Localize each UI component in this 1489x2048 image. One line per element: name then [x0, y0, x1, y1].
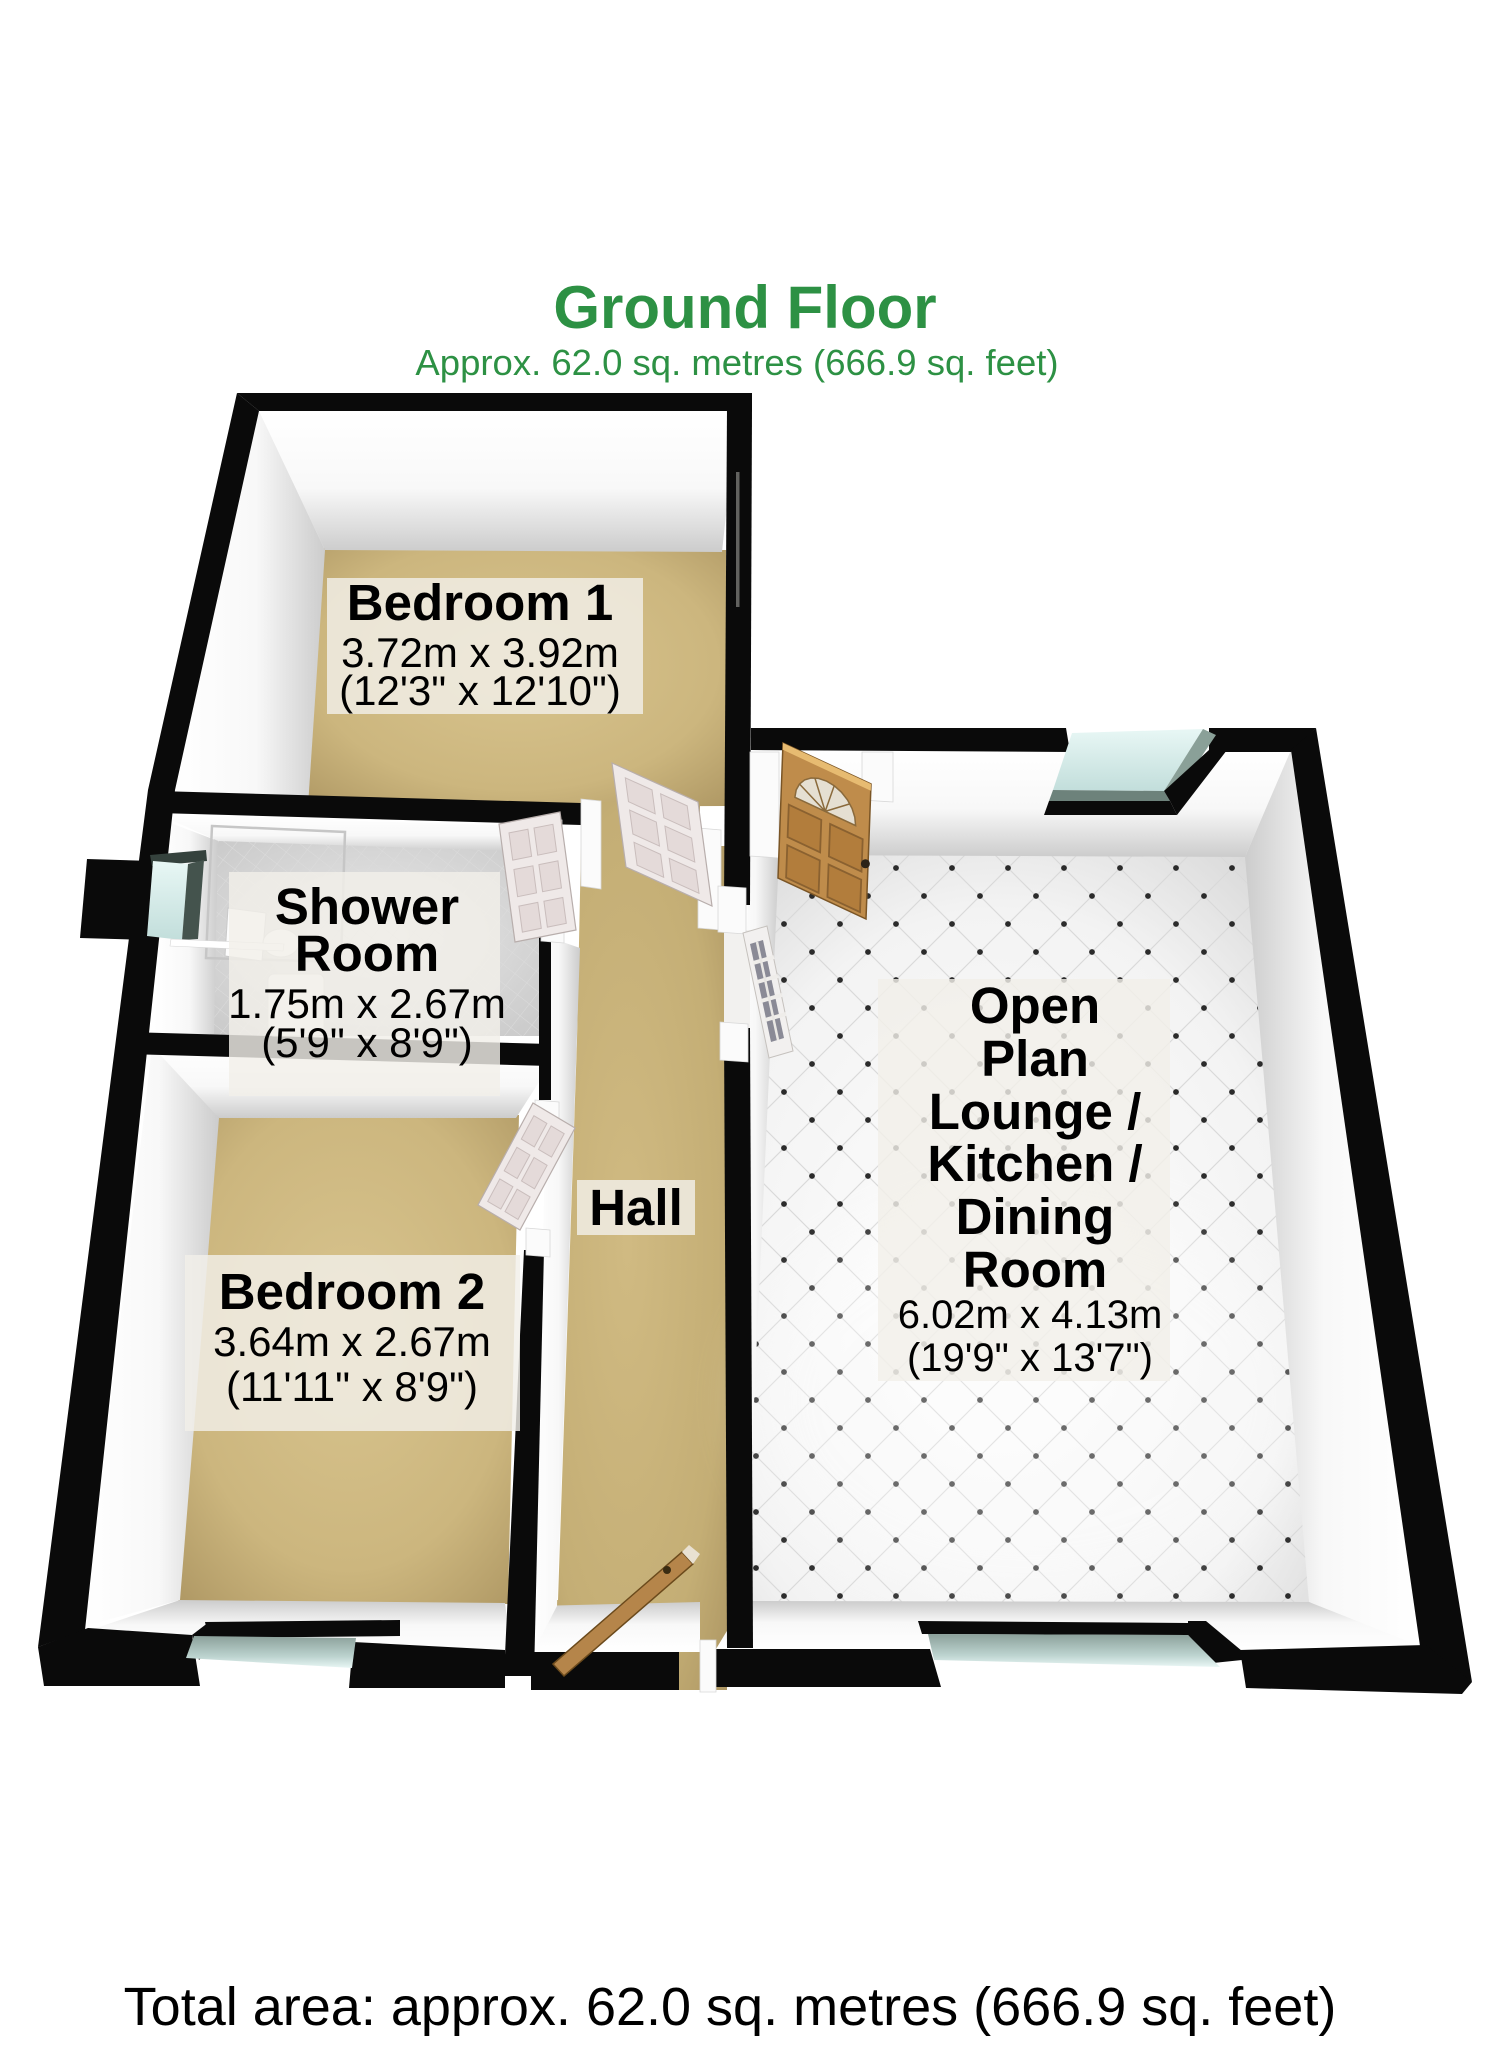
svg-text:Bedroom 2: Bedroom 2	[219, 1263, 485, 1320]
svg-text:Open: Open	[970, 977, 1100, 1034]
svg-text:(12'3" x 12'10"): (12'3" x 12'10")	[339, 667, 621, 714]
svg-text:(11'11" x 8'9"): (11'11" x 8'9")	[226, 1363, 478, 1410]
svg-text:Room: Room	[295, 925, 439, 982]
svg-text:Total area: approx. 62.0 sq. m: Total area: approx. 62.0 sq. metres (666…	[124, 1977, 1337, 2037]
svg-text:Bedroom 1: Bedroom 1	[347, 574, 613, 631]
svg-text:Hall: Hall	[589, 1179, 683, 1236]
svg-text:Approx. 62.0 sq. metres (666.9: Approx. 62.0 sq. metres (666.9 sq. feet)	[415, 342, 1058, 383]
svg-text:Kitchen /: Kitchen /	[927, 1135, 1142, 1192]
svg-text:3.64m x 2.67m: 3.64m x 2.67m	[213, 1318, 491, 1365]
svg-text:6.02m x 4.13m: 6.02m x 4.13m	[898, 1293, 1163, 1337]
svg-text:Room: Room	[963, 1241, 1107, 1298]
svg-text:(19'9" x 13'7"): (19'9" x 13'7")	[907, 1336, 1153, 1380]
svg-text:Dining: Dining	[956, 1188, 1115, 1245]
svg-text:(5'9" x 8'9"): (5'9" x 8'9")	[261, 1019, 473, 1066]
svg-text:Plan: Plan	[981, 1030, 1089, 1087]
svg-text:Ground Floor: Ground Floor	[553, 274, 936, 341]
svg-text:Lounge /: Lounge /	[929, 1083, 1141, 1140]
